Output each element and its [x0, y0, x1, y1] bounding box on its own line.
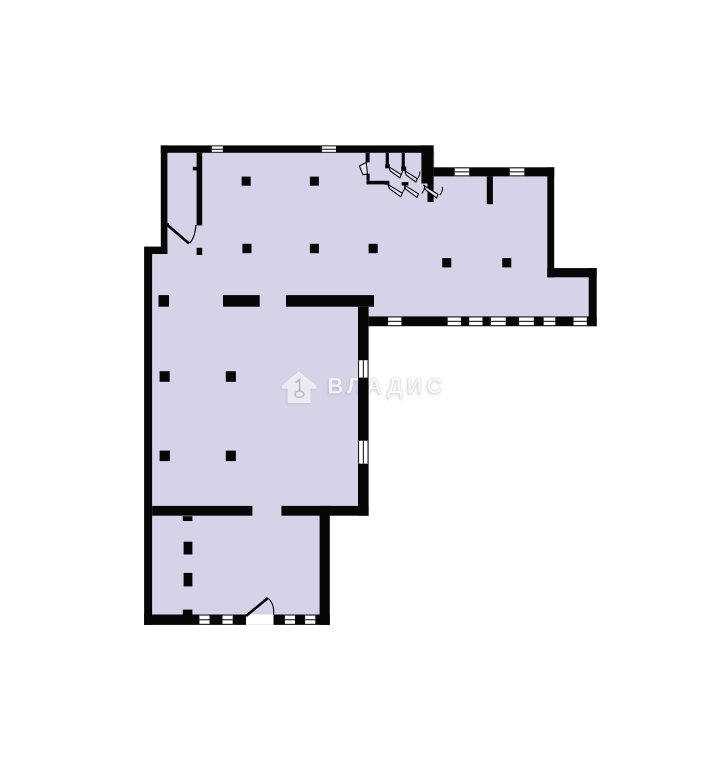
svg-text:ВЛАДИС: ВЛАДИС — [328, 374, 447, 399]
